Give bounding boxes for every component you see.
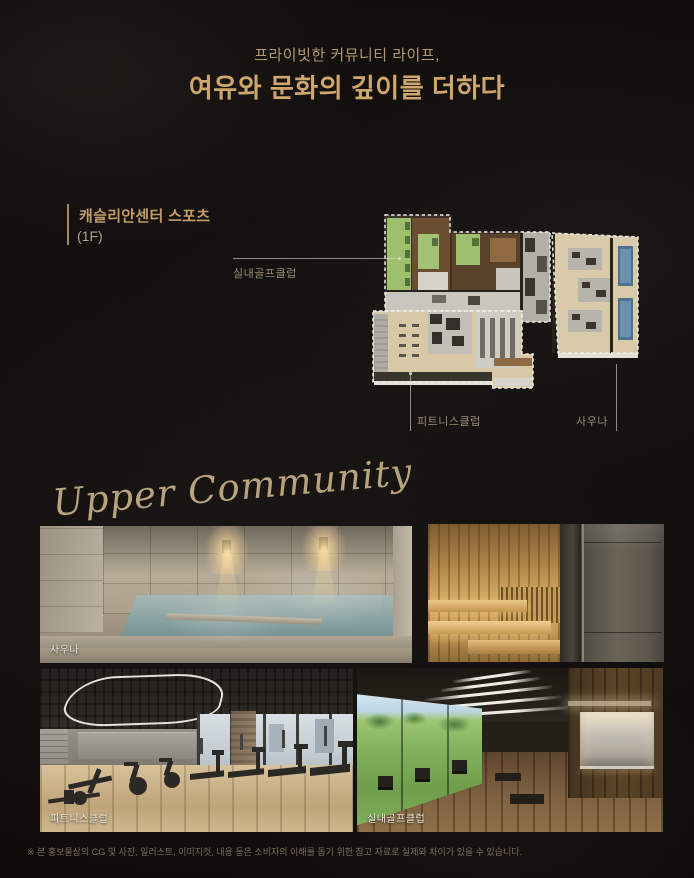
lit-wall-niche xyxy=(580,712,653,766)
waiting-bench xyxy=(495,773,521,781)
photo-caption-fitness: 피트니스클럽 xyxy=(50,810,108,825)
floor-plan-rendering xyxy=(372,212,642,392)
waiting-bench xyxy=(510,794,544,804)
panel-edge xyxy=(582,524,584,662)
sauna-bench xyxy=(468,640,565,654)
callout-label-sauna: 사우나 xyxy=(536,413,608,429)
photo-caption-golf: 실내골프클럽 xyxy=(367,810,425,825)
wall-sconce-light xyxy=(222,540,231,553)
sauna-bench xyxy=(428,600,527,612)
niche-shelf xyxy=(580,766,653,769)
cove-light xyxy=(568,701,651,706)
section-title: 캐슬리안센터 스포츠 xyxy=(79,205,210,226)
callout-line-golf xyxy=(233,258,399,259)
screen-trees xyxy=(357,701,482,750)
script-heading: Upper Community xyxy=(51,450,414,524)
section-marker-bar xyxy=(67,204,69,245)
callout-label-golf: 실내골프클럽 xyxy=(233,265,297,281)
sauna-bench xyxy=(428,621,551,635)
pool-deck xyxy=(40,648,412,663)
header-subtitle: 프라이빗한 커뮤니티 라이프, xyxy=(0,44,694,65)
photo-sauna-bath: 사우나 xyxy=(40,526,412,663)
grey-door-panel xyxy=(581,524,664,662)
floor-plan-svg xyxy=(372,212,642,392)
simulator-monitor xyxy=(378,776,393,790)
simulator-monitor xyxy=(452,760,467,774)
section-floor-label: (1F) xyxy=(77,228,103,244)
gym-equipment-silhouettes xyxy=(40,668,353,832)
left-wall xyxy=(40,526,103,633)
footer-disclaimer: ※ 본 홍보물상의 CG 및 사진, 일러스트, 이미지컷, 내용 등은 소비자… xyxy=(27,845,522,858)
photo-indoor-golf: 실내골프클럽 xyxy=(357,668,663,832)
callout-line-fitness xyxy=(410,374,411,431)
panel-seam xyxy=(584,542,662,543)
callout-line-sauna xyxy=(616,364,617,431)
panel-seam xyxy=(584,632,662,633)
photo-dry-sauna xyxy=(428,524,664,662)
photo-fitness-club: 피트니스클럽 xyxy=(40,668,353,832)
simulator-monitor xyxy=(415,768,430,782)
page-title: 여유와 문화의 깊이를 더하다 xyxy=(0,68,694,105)
photo-caption-sauna: 사우나 xyxy=(50,641,79,656)
wall-sconce-light xyxy=(319,537,328,550)
dark-corner-wall xyxy=(560,524,581,662)
callout-label-fitness: 피트니스클럽 xyxy=(417,413,481,429)
steam-overlay xyxy=(159,564,382,646)
page-background: 프라이빗한 커뮤니티 라이프, 여유와 문화의 깊이를 더하다 캐슬리안센터 스… xyxy=(0,0,694,878)
